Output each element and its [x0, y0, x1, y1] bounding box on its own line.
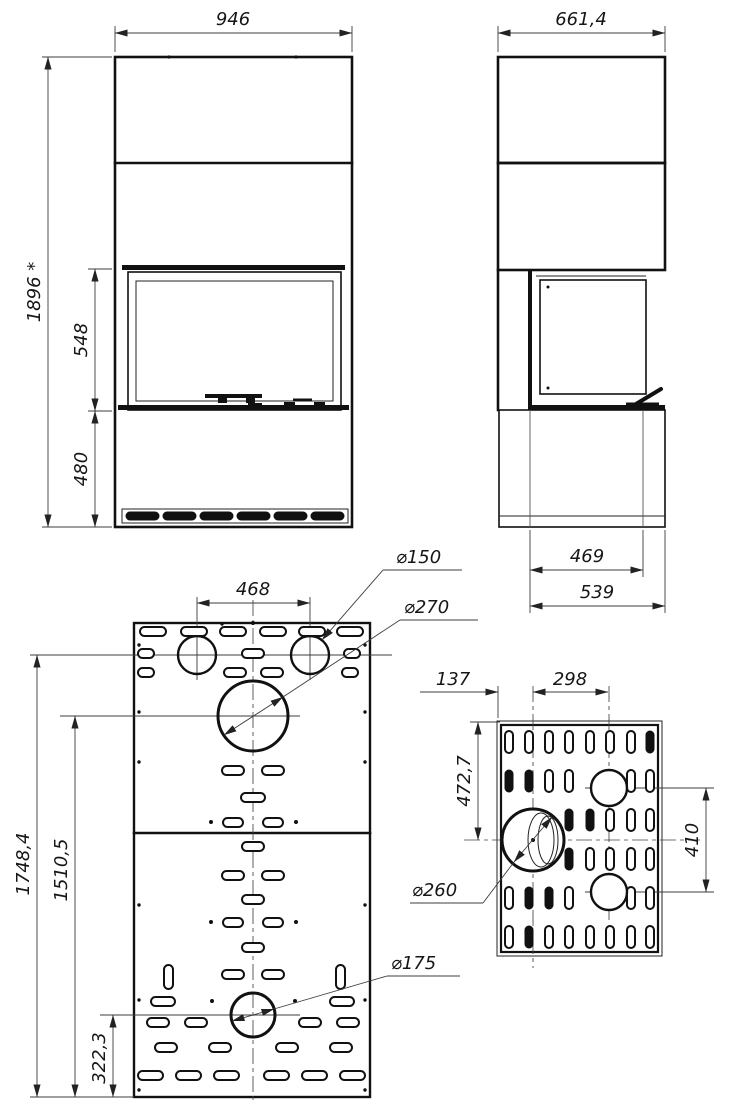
side-firebox-depth-dim-label: 469: [570, 546, 604, 567]
side-view: 661,4 469 539: [498, 9, 665, 613]
rear-panel-view: 468 1748,4 1510,5 322,3 ⌀150 ⌀270 ⌀175: [13, 547, 478, 1104]
side-panel-front-offset-dim-label: 137: [436, 669, 471, 690]
front-body: [115, 57, 352, 527]
side-panel-main-hole-dia-label: ⌀260: [412, 880, 457, 901]
rear-center-hole-dia-label: ⌀270: [404, 597, 449, 618]
technical-drawing: 946 1896 * 548 480: [0, 0, 733, 1106]
front-base-vent: [122, 509, 348, 523]
rear-total-height-dim-label: 1748,4: [13, 833, 34, 896]
side-base: [499, 410, 665, 527]
side-dimensions: 661,4 469 539: [498, 9, 665, 613]
side-panel-hole-bottom: [591, 874, 627, 910]
side-depth-dim-label: 661,4: [555, 9, 607, 30]
side-panel-view: 137 298 472,7 410 ⌀260: [410, 669, 714, 968]
front-glass-frame: [128, 272, 341, 410]
side-door-handle: [626, 389, 661, 405]
rear-bottom-hole-dia-label: ⌀175: [391, 953, 436, 974]
side-panel-hole-top: [591, 770, 627, 806]
side-panel-hole-pitch-v-dim-label: 410: [682, 823, 703, 857]
side-glass: [540, 280, 646, 394]
front-base-height-dim-label: 480: [71, 452, 92, 486]
rear-top-hole-dia-label: ⌀150: [396, 547, 441, 568]
side-panel-hole-pitch-h-dim-label: 298: [553, 669, 587, 690]
front-glass-height-dim-label: 548: [71, 323, 92, 357]
rear-hole-pitch-dim-label: 468: [236, 579, 270, 600]
front-glass: [136, 281, 333, 401]
rear-panel-vent-slots: [138, 627, 365, 1080]
drawing-sheet: 946 1896 * 548 480: [0, 0, 733, 1106]
front-total-height-dim-label: 1896 *: [24, 262, 45, 323]
side-panel-top-offset-dim-label: 472,7: [454, 755, 475, 807]
front-width-dim-label: 946: [216, 9, 250, 30]
rear-center-hole-height-dim-label: 1510,5: [51, 839, 72, 902]
rear-panel-edge-dots: [137, 621, 366, 1092]
front-view: 946 1896 * 548 480: [24, 9, 352, 527]
side-base-depth-dim-label: 539: [580, 582, 614, 603]
rear-bottom-hole-height-dim-label: 322,3: [89, 1032, 110, 1084]
